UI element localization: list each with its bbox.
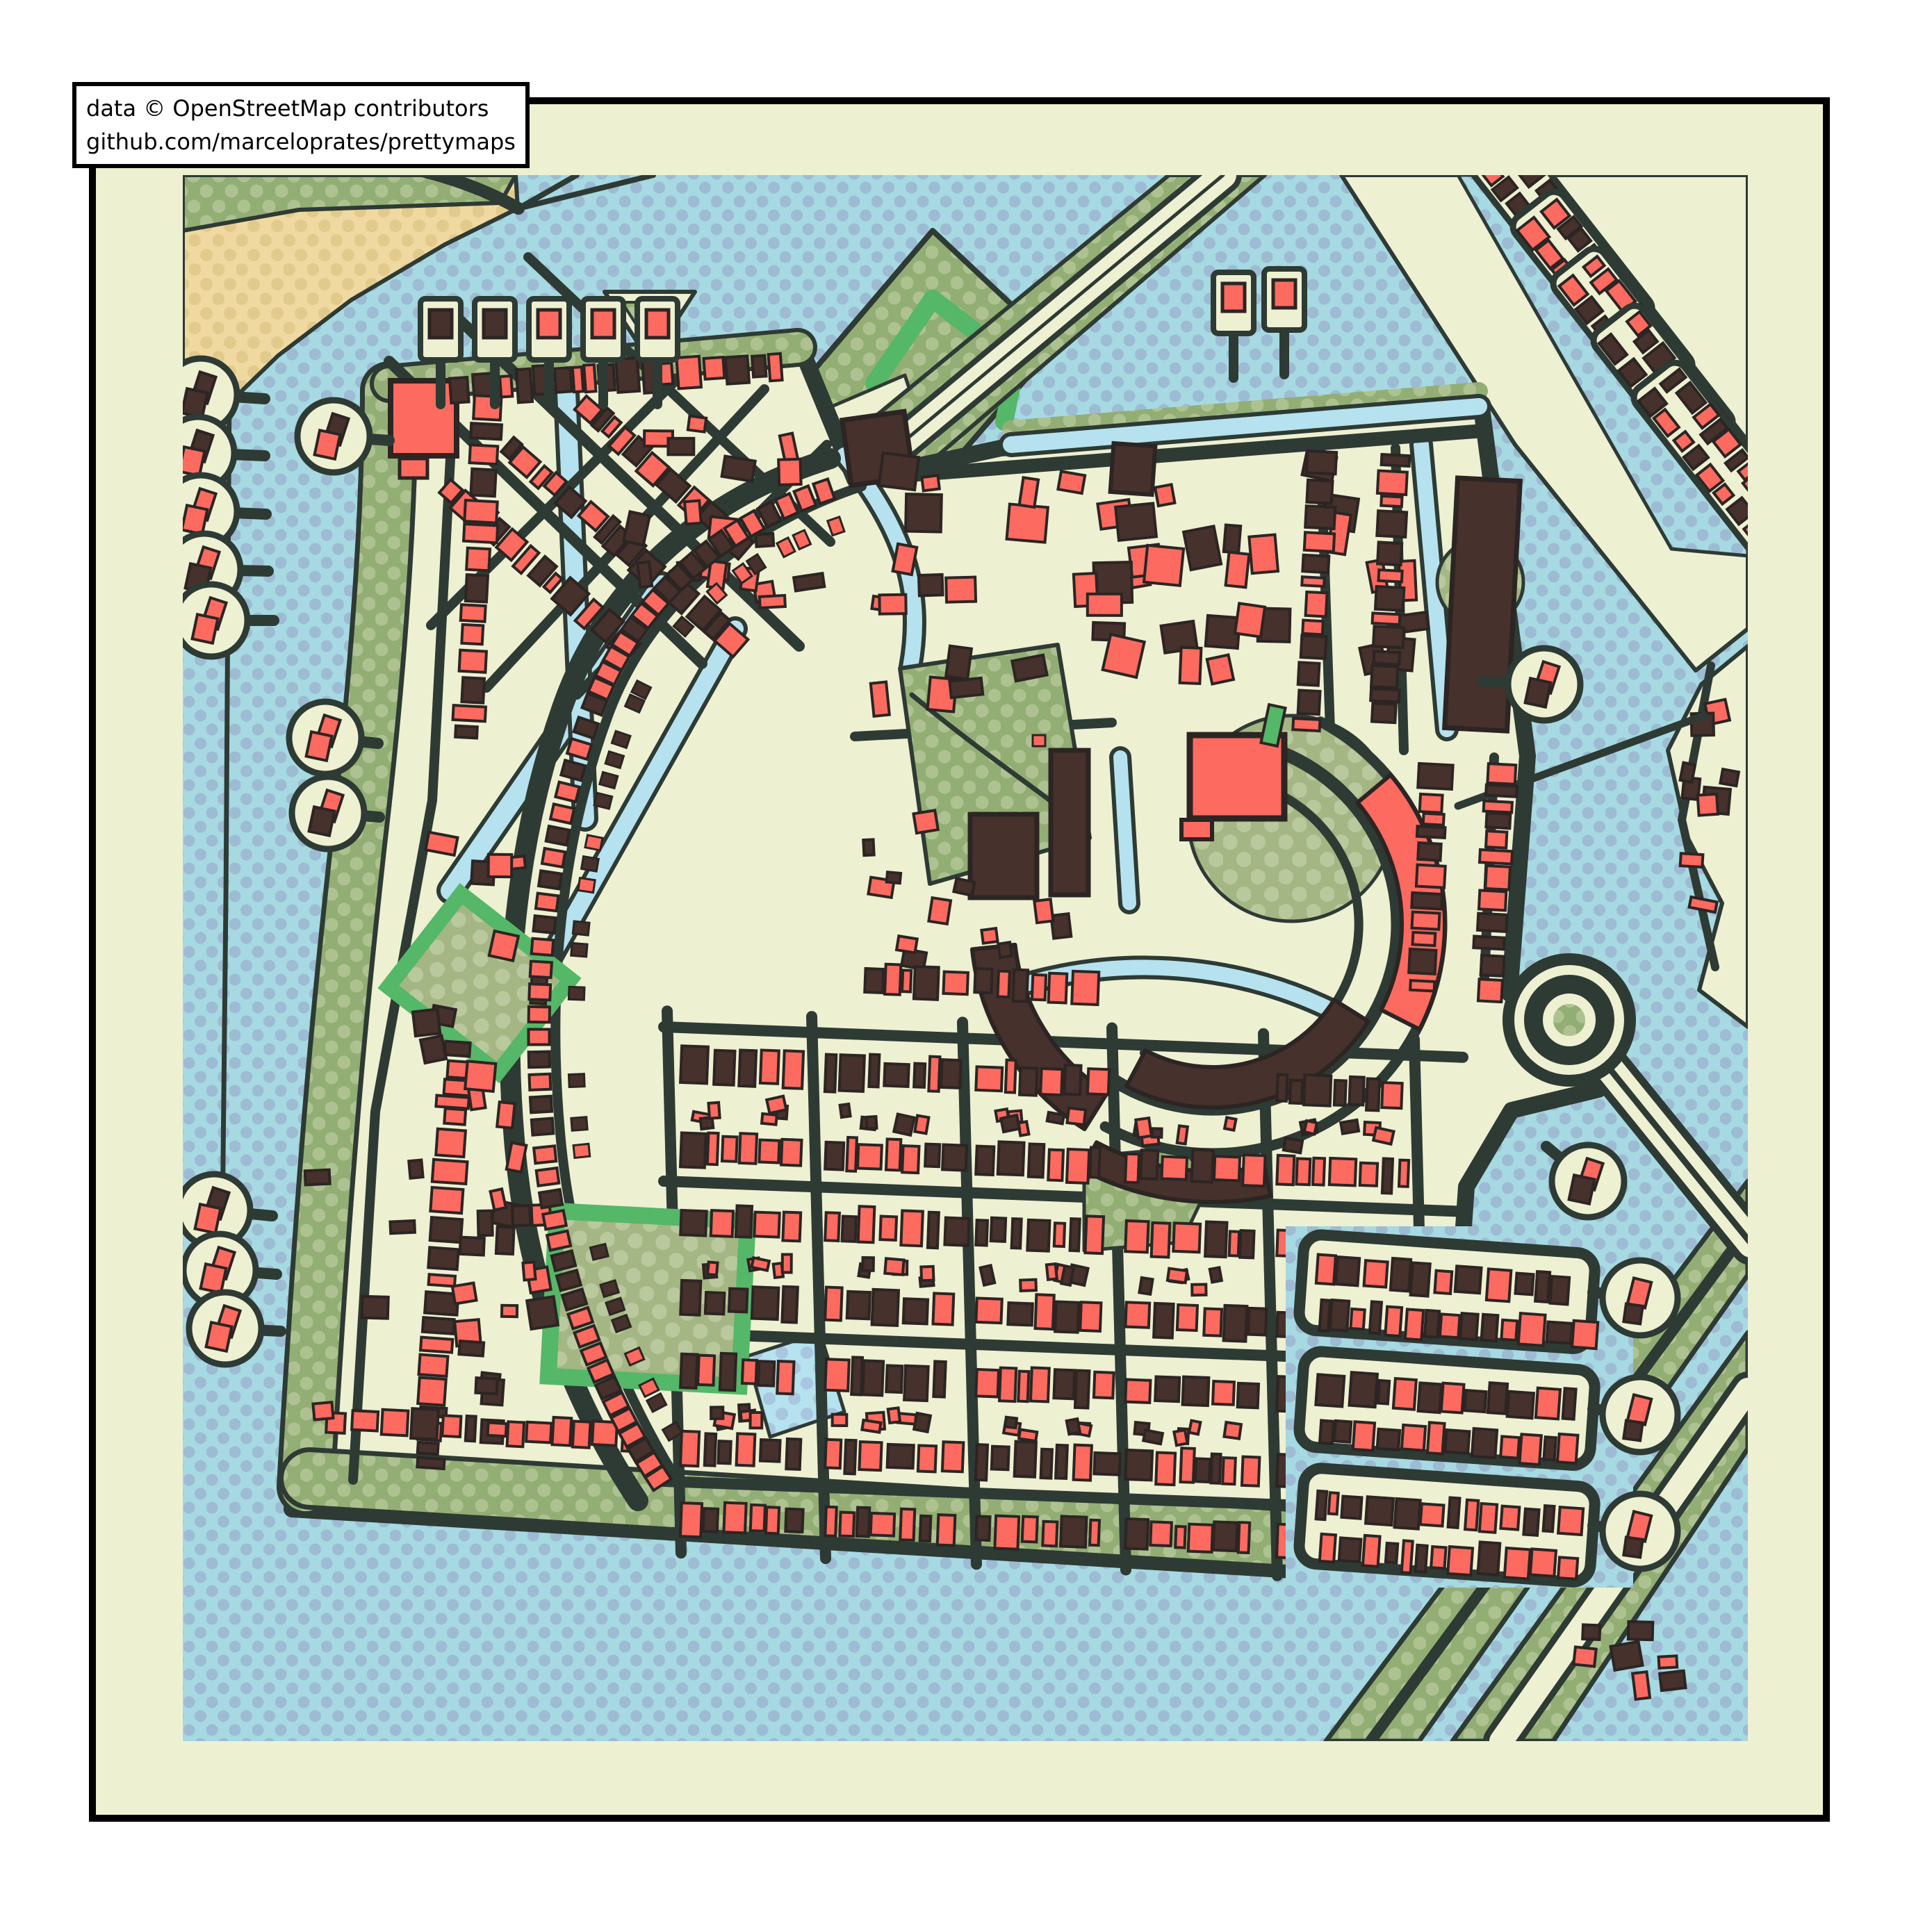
attribution-line-1: data © OpenStreetMap contributors — [86, 92, 516, 125]
prettymaps-map — [0, 0, 1932, 1919]
attribution-line-2: github.com/marceloprates/prettymaps — [86, 125, 516, 158]
attribution-box: data © OpenStreetMap contributors github… — [72, 82, 530, 168]
peninsula-layer — [1286, 1226, 1678, 1588]
map-content — [104, 130, 1818, 1741]
page: data © OpenStreetMap contributors github… — [0, 0, 1932, 1919]
